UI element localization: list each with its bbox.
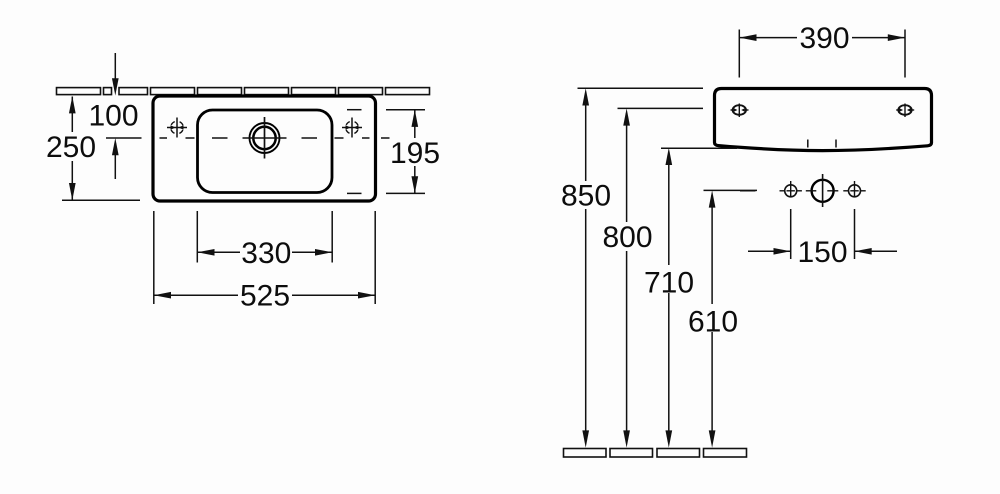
svg-text:710: 710 <box>644 267 694 300</box>
svg-text:150: 150 <box>797 236 847 269</box>
svg-text:850: 850 <box>561 180 611 213</box>
svg-text:330: 330 <box>241 237 291 270</box>
svg-text:800: 800 <box>602 221 652 254</box>
svg-text:195: 195 <box>390 137 440 170</box>
svg-text:100: 100 <box>88 100 138 133</box>
svg-text:390: 390 <box>799 22 849 55</box>
svg-text:250: 250 <box>46 131 96 164</box>
svg-text:525: 525 <box>240 280 290 313</box>
svg-text:610: 610 <box>688 306 738 339</box>
